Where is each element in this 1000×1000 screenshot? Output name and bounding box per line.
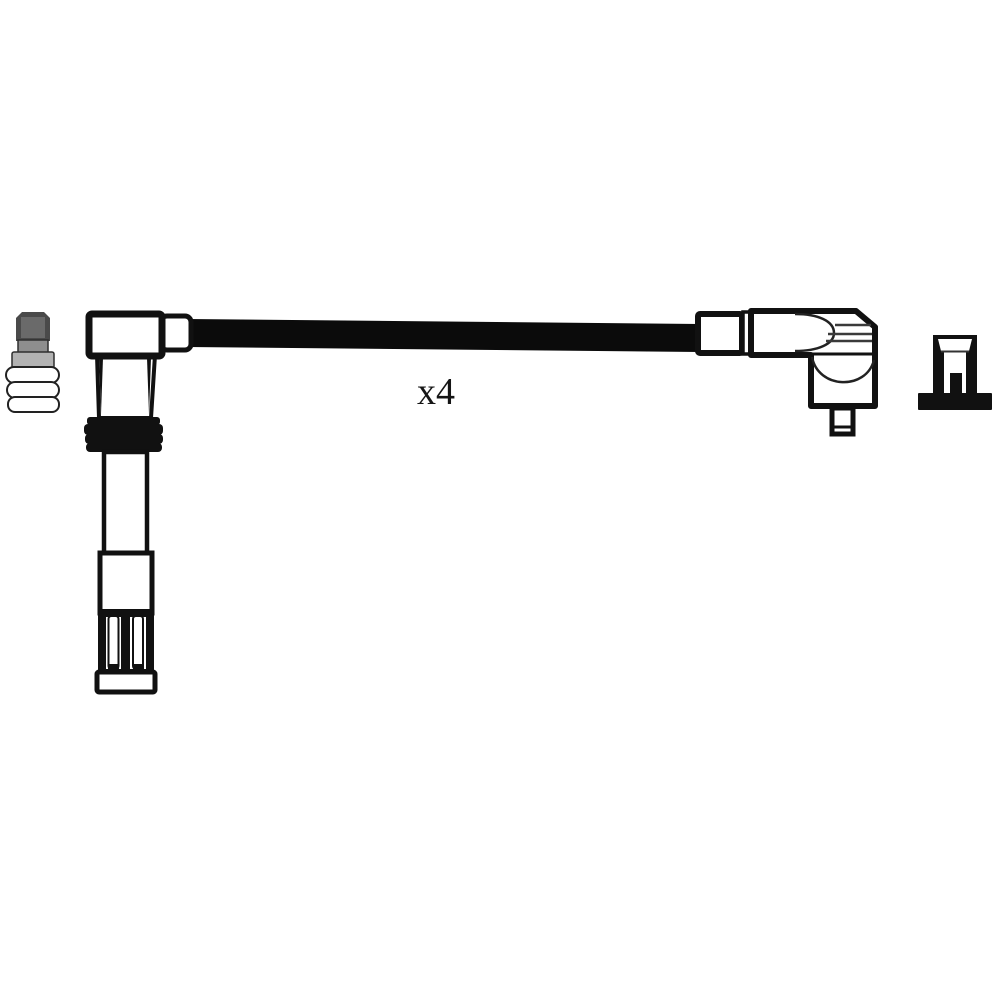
product-illustration: x4 [0, 0, 1000, 1000]
boot-slot-foot [133, 664, 144, 670]
boot-head [89, 314, 162, 356]
plug-hex [18, 340, 48, 353]
socket-pin [950, 373, 962, 393]
boot-sleeve [100, 553, 152, 613]
boot-taper [97, 355, 155, 418]
product-image: x4 [0, 0, 1000, 1000]
boot-collar-rib [84, 424, 163, 435]
boot-slot-divider [121, 612, 130, 673]
boot-end-cap [97, 672, 155, 692]
plug-insulator-rib [7, 382, 59, 398]
plug-insulator-rib [8, 397, 59, 412]
socket-base [918, 393, 992, 410]
boot-slot-foot [108, 664, 119, 670]
boot-collar-rib [85, 434, 163, 444]
spark-plug-terminal-icon [6, 312, 59, 412]
elbow-connector [698, 311, 875, 434]
quantity-label: x4 [417, 371, 455, 413]
spark-plug-boot [84, 314, 191, 692]
elbow-terminal-tab [832, 408, 853, 434]
plug-shoulder [12, 352, 54, 368]
plug-insulator-rib [6, 367, 59, 383]
elbow-collar [698, 314, 742, 353]
socket-opening [938, 339, 972, 351]
cable-body [185, 319, 702, 352]
ignition-cable [185, 319, 702, 352]
boot-shaft [104, 452, 147, 554]
plug-cap-face [21, 317, 45, 338]
boot-collar-top [87, 417, 160, 425]
coil-socket-icon [918, 335, 992, 410]
